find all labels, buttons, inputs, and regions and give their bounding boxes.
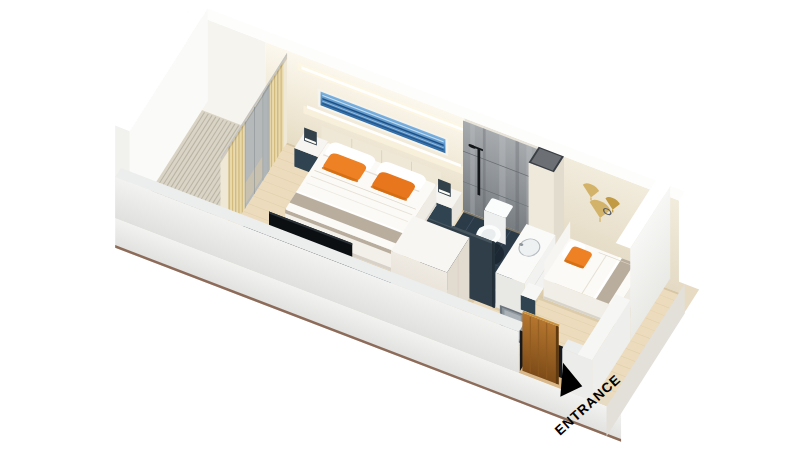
floorplan-scene: ENTRANCE [0, 0, 800, 450]
floorplan-3d-render: ENTRANCE [0, 0, 800, 450]
